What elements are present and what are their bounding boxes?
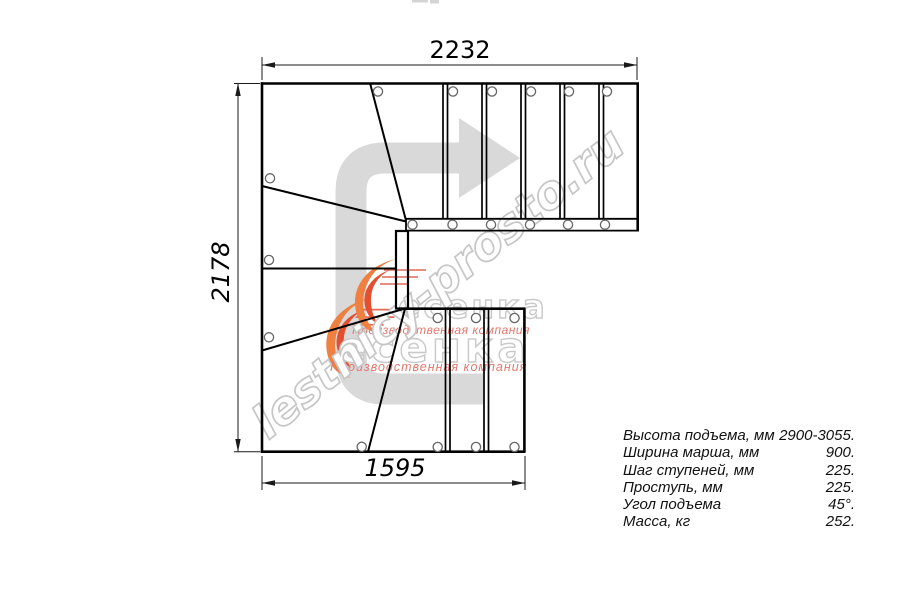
spec-value: 45°. (721, 496, 855, 513)
dimension-top-label: 2232 (429, 36, 490, 64)
spec-label: Шаг ступеней, мм (623, 462, 754, 479)
cropped-top-artifact (430, 0, 439, 4)
spec-row-tread: Проступь, мм 225. (623, 479, 855, 496)
dimension-left-label: 2178 (207, 241, 235, 302)
spec-value: 225. (723, 479, 855, 496)
spec-row-height: Высота подъема, мм 2900-3055. (623, 427, 855, 444)
watermark-layer: есенка Производственная компания есенка … (241, 0, 634, 449)
spec-value: 252. (690, 513, 855, 530)
cropped-top-artifact (412, 0, 428, 3)
spec-value: 225. (754, 462, 855, 479)
spec-label: Ширина марша, мм (623, 444, 759, 461)
spec-label: Угол подъема (623, 496, 721, 513)
spec-label: Масса, кг (623, 513, 690, 530)
spec-row-angle: Угол подъема 45°. (623, 496, 855, 513)
stair-plan-page: есенка Производственная компания есенка … (0, 0, 900, 600)
spec-value: 2900-3055. (775, 427, 855, 444)
specs-table: Высота подъема, мм 2900-3055. Ширина мар… (623, 427, 855, 531)
spec-row-flight-width: Ширина марша, мм 900. (623, 444, 855, 461)
spec-row-step-pitch: Шаг ступеней, мм 225. (623, 462, 855, 479)
dimension-bottom-label: 1595 (364, 454, 425, 482)
spec-row-mass: Масса, кг 252. (623, 513, 855, 530)
spec-value: 900. (759, 444, 855, 461)
spec-label: Проступь, мм (623, 479, 723, 496)
spec-label: Высота подъема, мм (623, 427, 775, 444)
direction-arrow-head (459, 118, 520, 198)
